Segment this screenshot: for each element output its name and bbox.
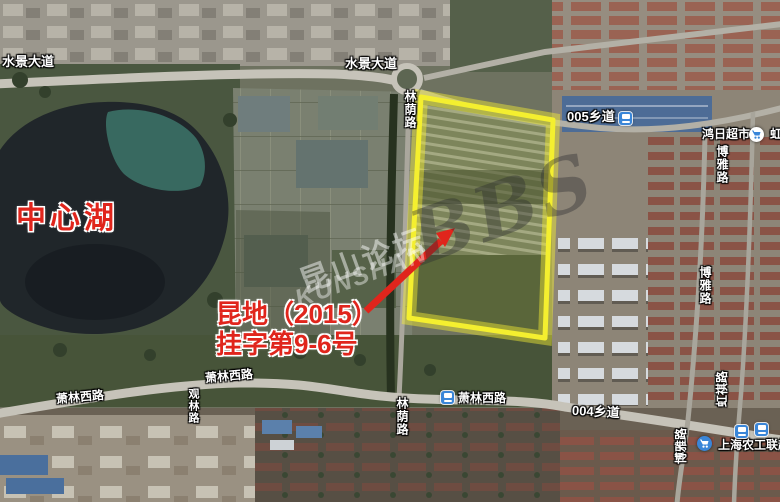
bus-stop-icon[interactable]: [441, 391, 454, 404]
road-label-shuijing-dadao-west: 水景大道: [2, 55, 54, 68]
road-label-005-township-road: 005乡道: [567, 110, 615, 123]
road-label-xiaolin-xilu-center: 萧林西路: [458, 392, 506, 404]
parcel-number-line2: 挂字第9-6号: [216, 330, 378, 360]
road-label-boya-lu-middle: 博雅路: [699, 266, 711, 305]
poi-label-shanghai-nonggong-supermarket: 上海农工联超: [718, 439, 780, 451]
lake-name-annotation: 中心湖: [16, 202, 118, 237]
shopping-cart-icon[interactable]: [749, 127, 764, 142]
parcel-number-line1: 昆地（2015）: [216, 300, 378, 330]
roundabout: [394, 66, 420, 92]
bus-stop-icon[interactable]: [619, 112, 632, 125]
bus-stop-icon[interactable]: [735, 425, 748, 438]
road-label-boya-lu-north: 博雅路: [716, 145, 728, 184]
parcel-outline: [409, 97, 553, 338]
satellite-map-canvas: [0, 0, 780, 502]
road-label-guanlin-lu: 观林路: [187, 388, 198, 424]
supermarket-icon[interactable]: [697, 436, 712, 451]
satellite-map-screenshot[interactable]: 昆山论坛 KUNSHAN BBS 水景大道 水景大道 林荫路 005乡道 虹祺路…: [0, 0, 780, 502]
road-label-linyin-lu-south: 林荫路: [396, 397, 408, 436]
poi-label-hongri-supermarket: 鸿日超市: [702, 128, 750, 140]
road-label-hongqi-lu-south: 虹祺路: [716, 371, 728, 407]
road-label-boya-lu-south: 博雅路: [675, 428, 687, 464]
parcel-number-annotation: 昆地（2015） 挂字第9-6号: [216, 300, 378, 360]
road-label-hongqi-lu-northeast: 虹祺路: [770, 128, 780, 140]
cart-glyph: [699, 438, 710, 449]
road-label-004-township-road: 004乡道: [572, 404, 620, 419]
road-label-linyin-lu-north: 林荫路: [404, 90, 416, 129]
cart-glyph: [751, 129, 762, 140]
bus-stop-icon[interactable]: [755, 423, 768, 436]
road-label-shuijing-dadao-center: 水景大道: [345, 57, 397, 70]
highlighted-parcel: [400, 90, 560, 350]
